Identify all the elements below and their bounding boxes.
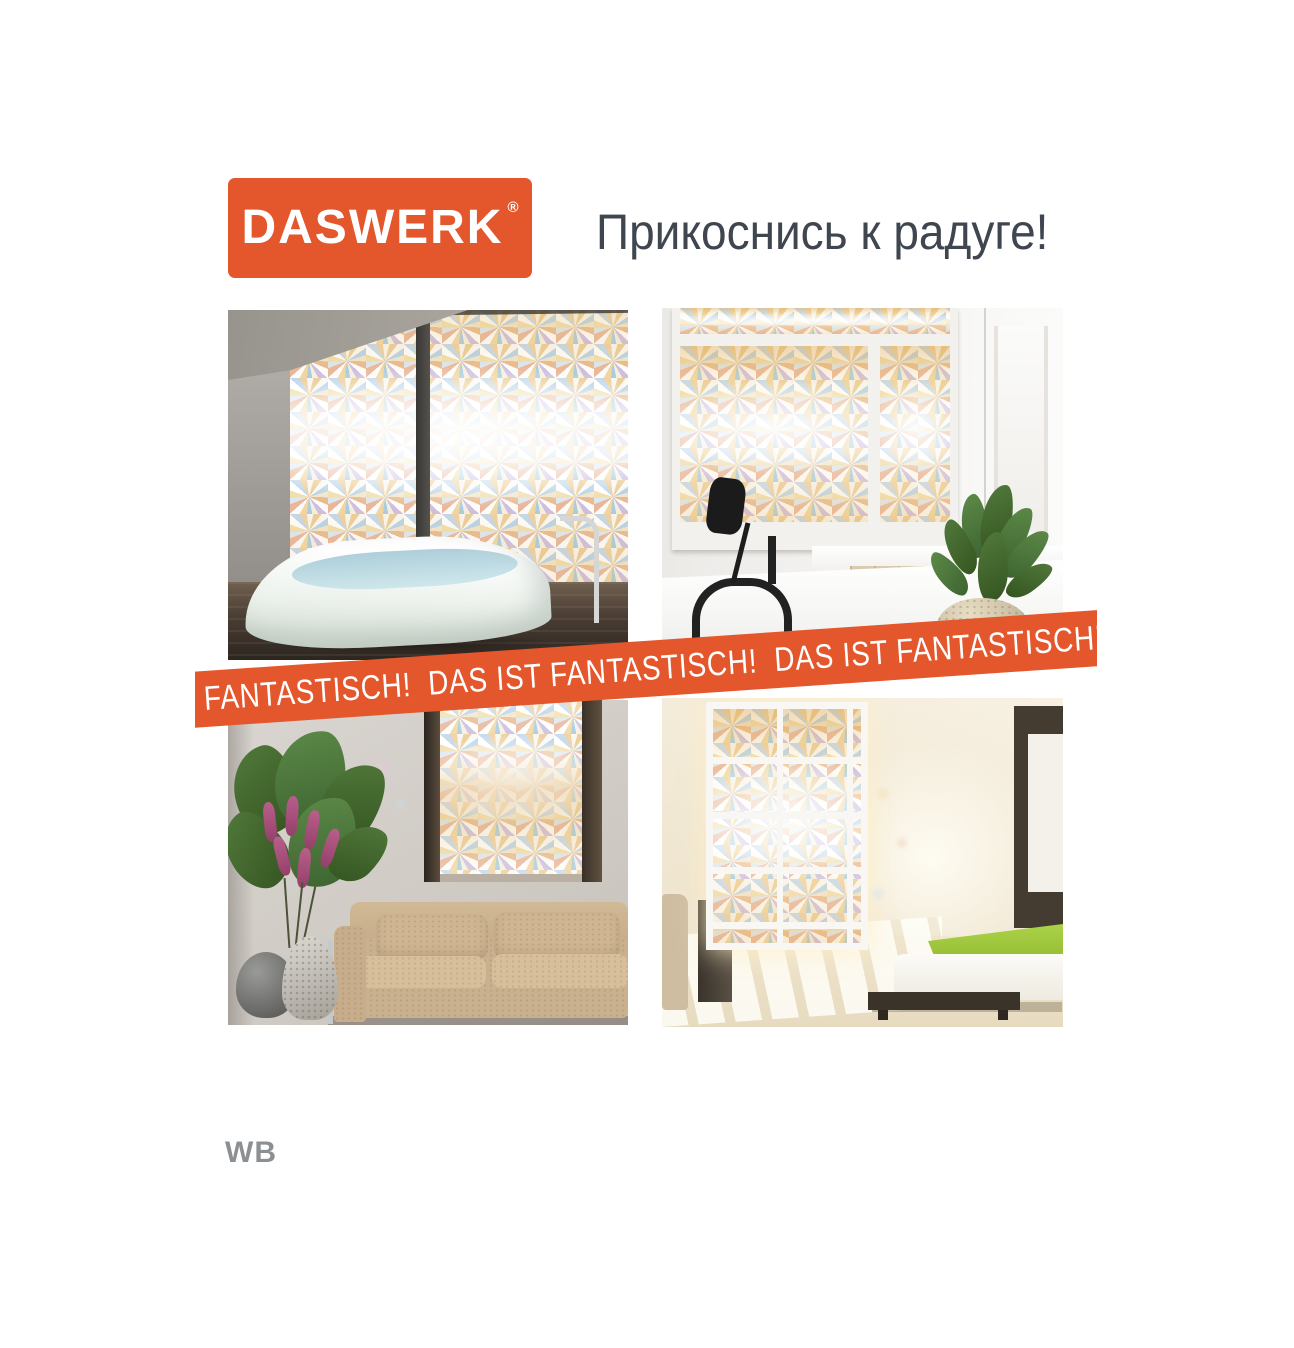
- sofa-armrest: [334, 926, 366, 1022]
- sofa-back-cushion: [494, 912, 620, 960]
- bench-leg: [878, 1010, 888, 1020]
- brand-name: DASWERK: [241, 204, 503, 252]
- light-reflection: [872, 888, 884, 900]
- window-muntin-grid: [713, 709, 861, 943]
- faucet-riser: [768, 536, 776, 584]
- light-reflection: [877, 788, 889, 800]
- film-amber-tint: [880, 346, 950, 522]
- bench-leg: [998, 1010, 1008, 1020]
- registered-trademark-icon: ®: [507, 200, 518, 215]
- ribbon-text: FANTASTISCH! DAS IST FANTASTISCH! DAS IS…: [195, 608, 1097, 719]
- marketplace-watermark: WB: [225, 1136, 277, 1170]
- sofa-seat-cushion: [492, 954, 628, 988]
- ribbon-clip: FANTASTISCH! DAS IST FANTASTISCH! DAS IS…: [195, 595, 1097, 740]
- armchair: [662, 894, 688, 1010]
- brand-logo: DASWERK ®: [228, 178, 532, 278]
- plant-stem: [284, 878, 291, 948]
- light-reflection: [396, 800, 406, 810]
- sofa-back-cushion: [376, 914, 488, 960]
- product-card: DASWERK ® Прикоснись к радуге!: [0, 0, 1294, 1348]
- sofa-seat-cushion: [358, 956, 486, 988]
- film-amber-tint: [680, 308, 950, 334]
- window-sill: [440, 874, 582, 882]
- bath-water: [291, 545, 519, 594]
- light-reflection: [897, 838, 907, 848]
- photo-bedroom: [662, 698, 1063, 1027]
- fantastisch-ribbon: FANTASTISCH! DAS IST FANTASTISCH! DAS IS…: [195, 607, 1097, 727]
- headboard-cushion: [1028, 734, 1063, 892]
- tagline: Прикоснись к радуге!: [596, 202, 1148, 262]
- photo-living-room: [228, 700, 628, 1025]
- bed-end-bench: [868, 992, 1020, 1010]
